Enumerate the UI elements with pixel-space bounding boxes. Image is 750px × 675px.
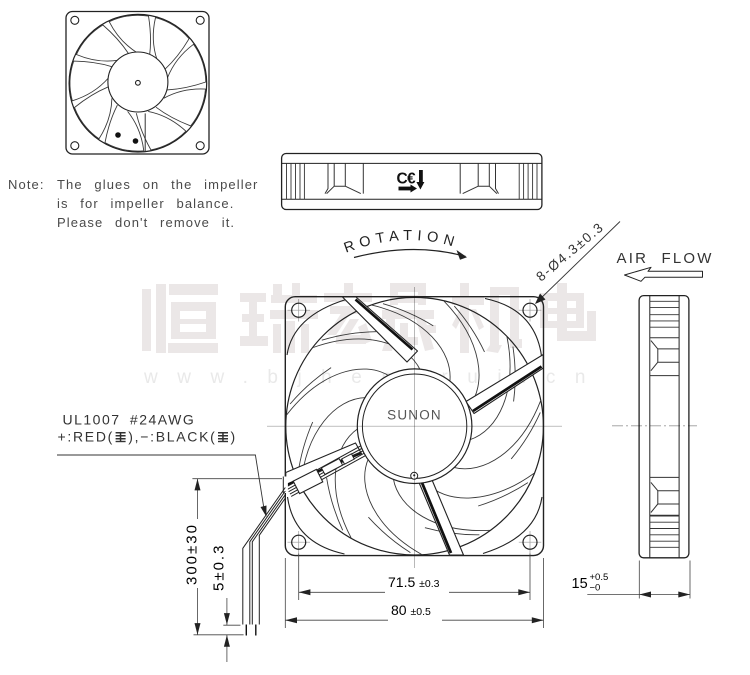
- svg-text:Note:: Note:: [8, 177, 45, 192]
- svg-text:+0.5: +0.5: [590, 572, 609, 583]
- svg-text:−0: −0: [590, 583, 601, 594]
- svg-text:UL1007 #24AWG: UL1007 #24AWG: [63, 412, 196, 428]
- svg-text:),−:BLACK(: ),−:BLACK(: [128, 429, 216, 445]
- svg-text:15: 15: [572, 576, 588, 592]
- svg-text:5±0.3: 5±0.3: [211, 544, 228, 591]
- svg-text:is for impeller balance.: is for impeller balance.: [57, 196, 234, 211]
- svg-text:€: €: [407, 171, 416, 188]
- svg-text:The glues on the impeller: The glues on the impeller: [57, 177, 258, 192]
- svg-text:): ): [231, 429, 237, 445]
- svg-text:AIR FLOW: AIR FLOW: [617, 250, 714, 267]
- svg-text:Please don't remove it.: Please don't remove it.: [57, 215, 235, 230]
- svg-text:+:RED(: +:RED(: [58, 429, 115, 445]
- svg-text:300±30: 300±30: [184, 523, 201, 585]
